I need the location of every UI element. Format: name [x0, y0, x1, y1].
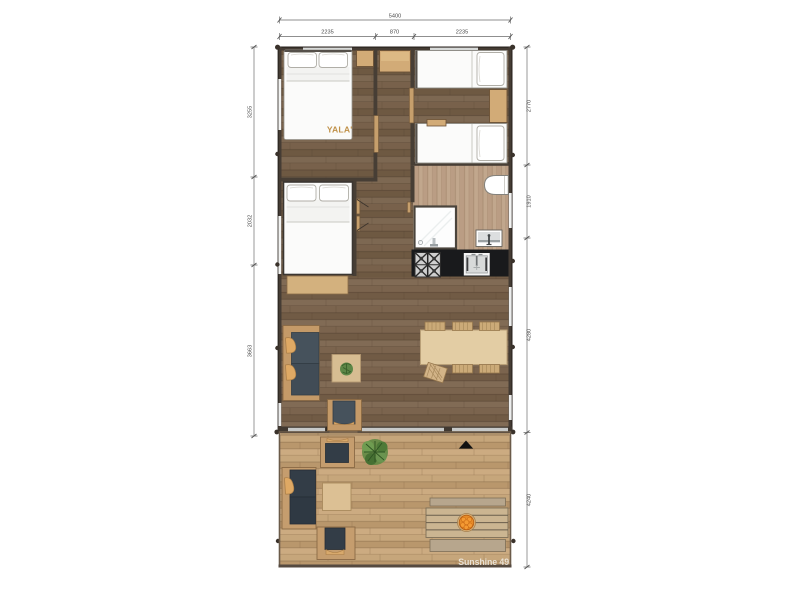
svg-text:YALA': YALA': [327, 125, 353, 135]
svg-text:2032: 2032: [248, 215, 254, 227]
svg-text:2770: 2770: [527, 100, 533, 112]
svg-text:2235: 2235: [456, 30, 468, 36]
svg-text:1910: 1910: [527, 195, 533, 207]
svg-text:5400: 5400: [389, 14, 401, 20]
svg-text:3255: 3255: [248, 106, 254, 118]
svg-text:2235: 2235: [321, 30, 333, 36]
svg-text:Sunshine 49: Sunshine 49: [458, 557, 509, 567]
svg-text:4240: 4240: [527, 494, 533, 506]
svg-text:3663: 3663: [248, 345, 254, 357]
svg-text:4280: 4280: [527, 329, 533, 341]
svg-text:870: 870: [390, 30, 399, 36]
